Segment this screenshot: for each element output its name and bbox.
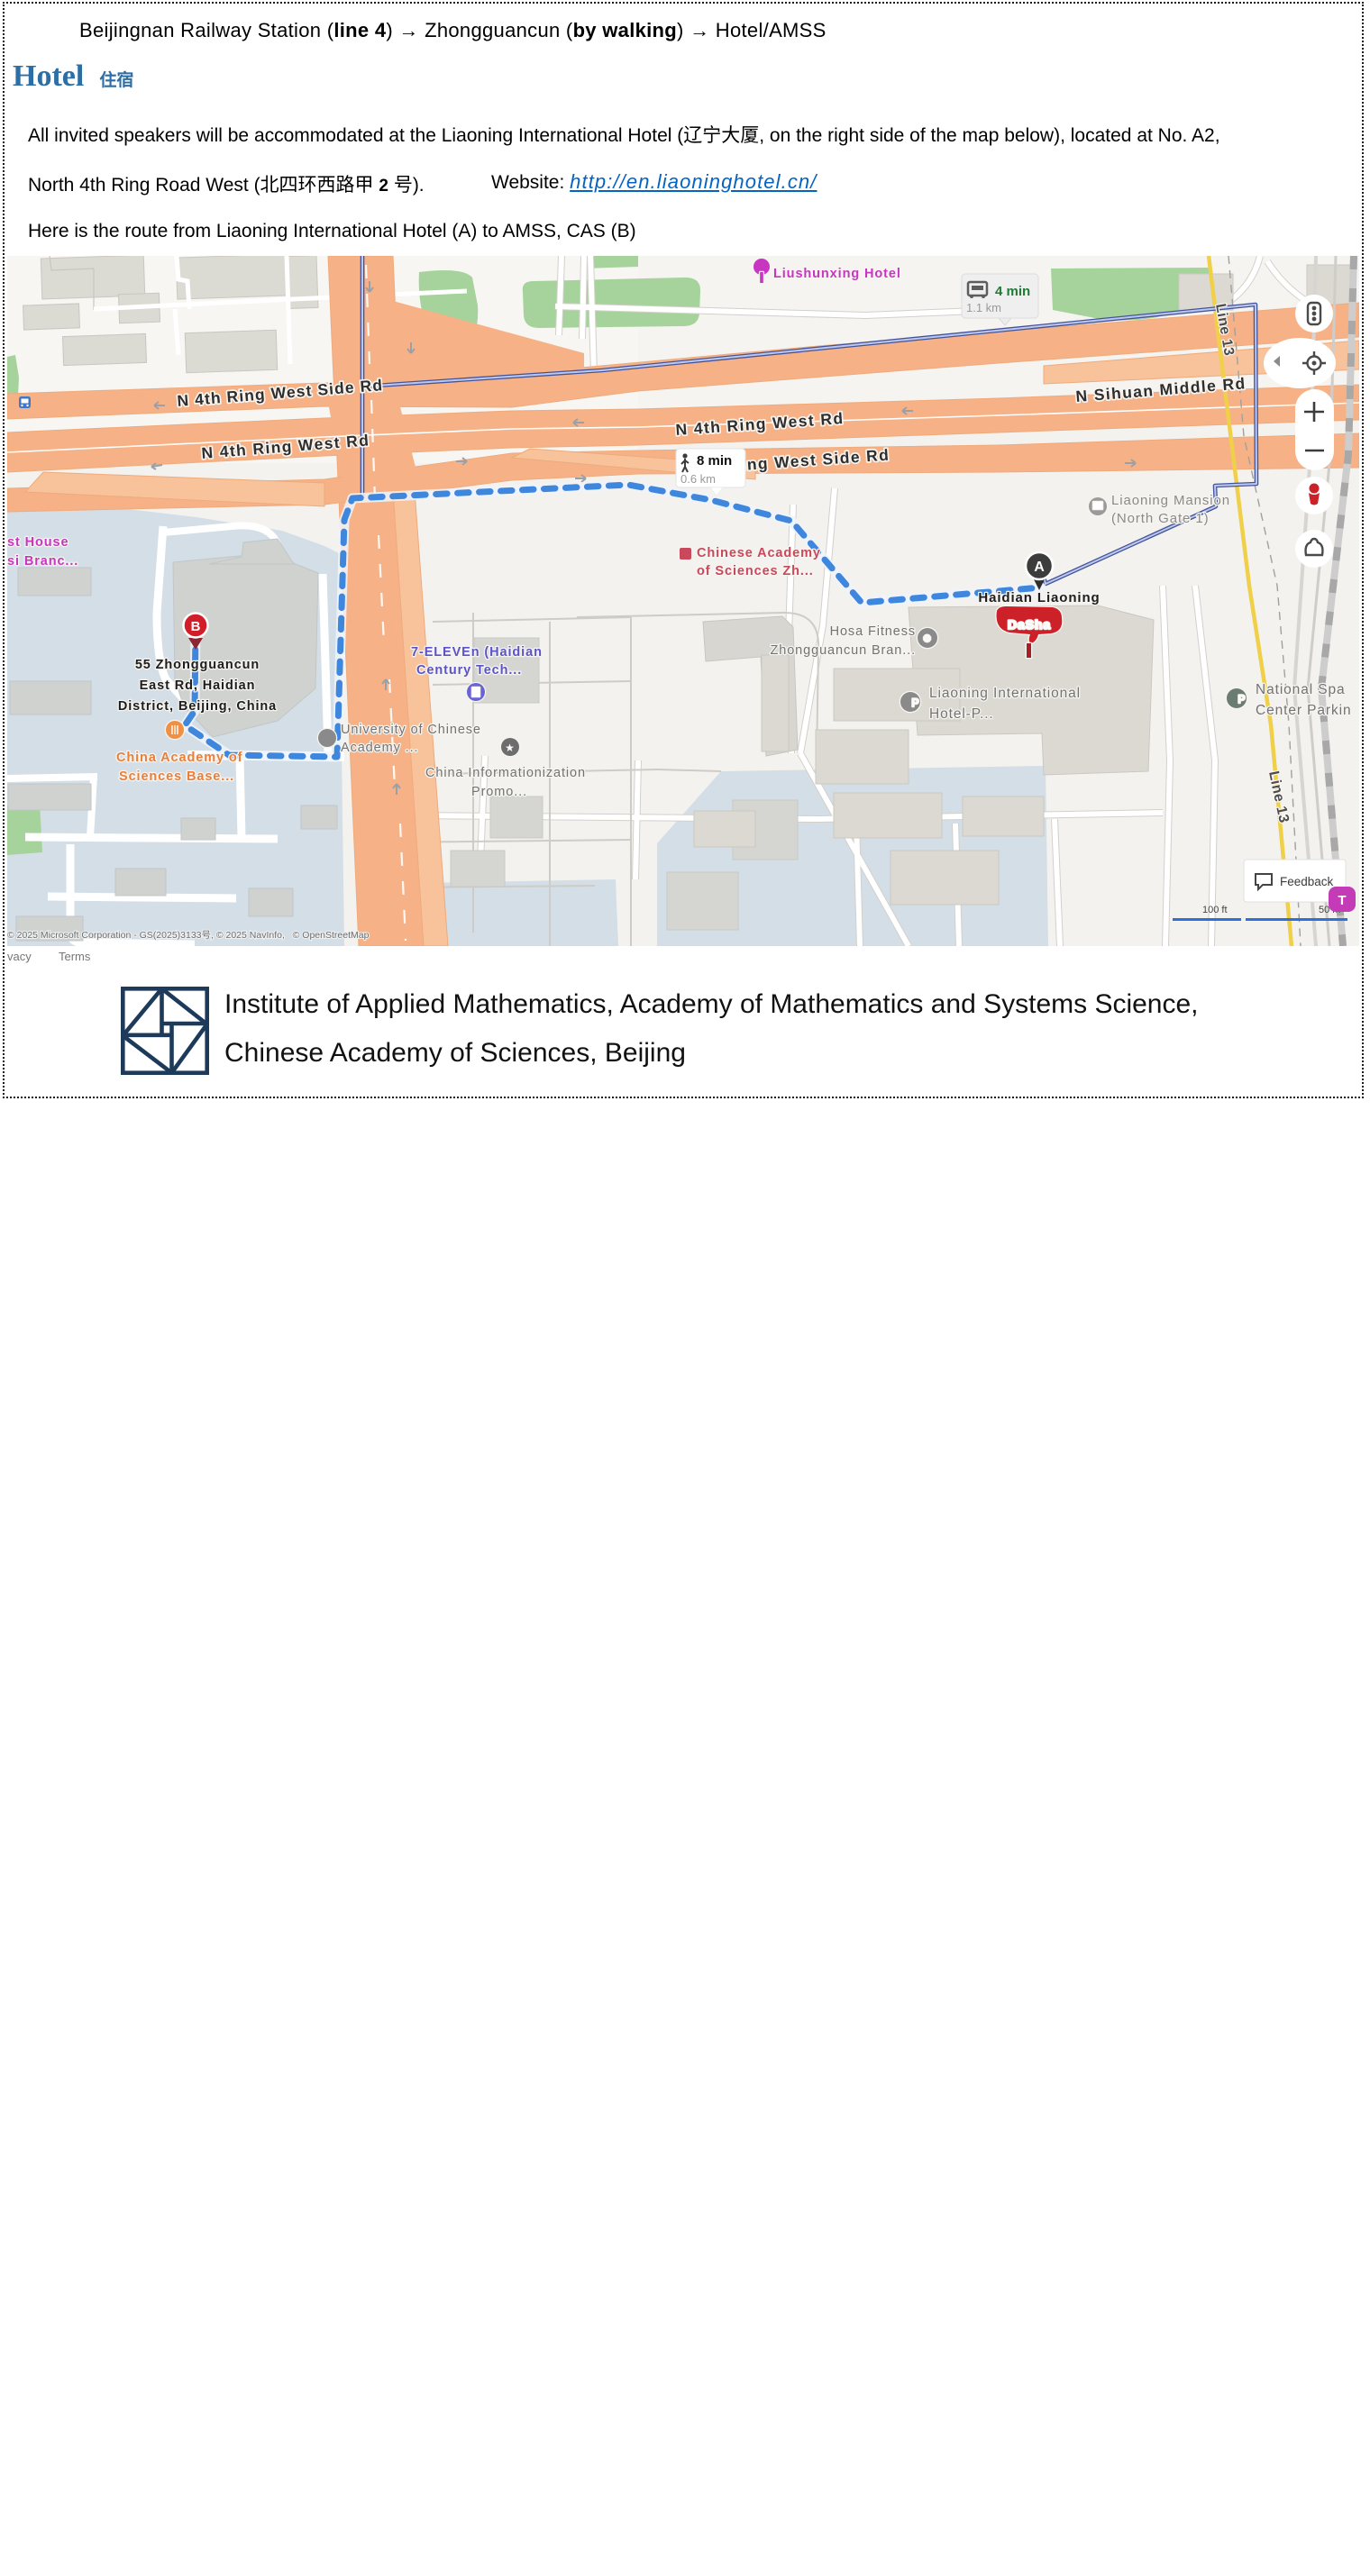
svg-text:National Spa: National Spa [1256,682,1346,697]
svg-text:Sciences Base...: Sciences Base... [119,769,234,784]
svg-text:4 min: 4 min [995,284,1030,299]
svg-text:⚙: ⚙ [923,634,932,644]
svg-text:DaSha: DaSha [1008,617,1051,632]
svg-text:0.6 km: 0.6 km [680,472,716,486]
svg-text:Academy ...: Academy ... [341,741,418,755]
svg-text:55 Zhongguancun: 55 Zhongguancun [135,658,260,672]
svg-text:Promo...: Promo... [471,785,527,799]
svg-text:1.1 km: 1.1 km [966,301,1001,314]
svg-text:Liaoning Mansion: Liaoning Mansion [1111,493,1230,508]
svg-text:Zhongguancun Bran...: Zhongguancun Bran... [771,643,917,658]
svg-text:7-ELEVEn (Haidian: 7-ELEVEn (Haidian [411,645,543,660]
svg-text:P: P [912,696,920,709]
svg-text:8 min: 8 min [697,453,732,469]
svg-text:Century Tech...: Century Tech... [416,663,522,678]
svg-text:China Informationization: China Informationization [425,766,586,780]
svg-text:Haidian Liaoning: Haidian Liaoning [978,590,1100,605]
svg-text:P: P [1238,693,1247,705]
svg-text:(North Gate 1): (North Gate 1) [1111,511,1209,526]
svg-text:Chinese Academy: Chinese Academy [697,546,821,560]
svg-text:© 2025 Microsoft Corporation -: © 2025 Microsoft Corporation - GS(2025)3… [7,930,370,941]
svg-text:Hotel-P...: Hotel-P... [929,706,994,722]
svg-text:B: B [191,619,201,634]
svg-text:★: ★ [505,742,516,754]
svg-text:si Branc...: si Branc... [7,554,78,569]
svg-text:st House: st House [7,535,68,550]
svg-text:100 ft: 100 ft [1202,905,1228,915]
svg-text:District, Beijing, China: District, Beijing, China [118,699,277,714]
svg-text:Center Parkin: Center Parkin [1256,703,1351,718]
svg-text:A: A [1034,560,1045,575]
svg-text:China Academy of: China Academy of [116,751,242,765]
svg-text:Hosa Fitness: Hosa Fitness [830,624,916,639]
svg-text:Liushunxing Hotel: Liushunxing Hotel [773,267,901,281]
svg-text:University of Chinese: University of Chinese [341,723,481,737]
svg-text:Feedback: Feedback [1280,875,1334,888]
svg-text:East Rd, Haidian: East Rd, Haidian [140,678,256,693]
svg-text:Liaoning International: Liaoning International [929,686,1081,701]
svg-text:T: T [1338,893,1346,908]
svg-text:of Sciences Zh...: of Sciences Zh... [697,564,814,578]
